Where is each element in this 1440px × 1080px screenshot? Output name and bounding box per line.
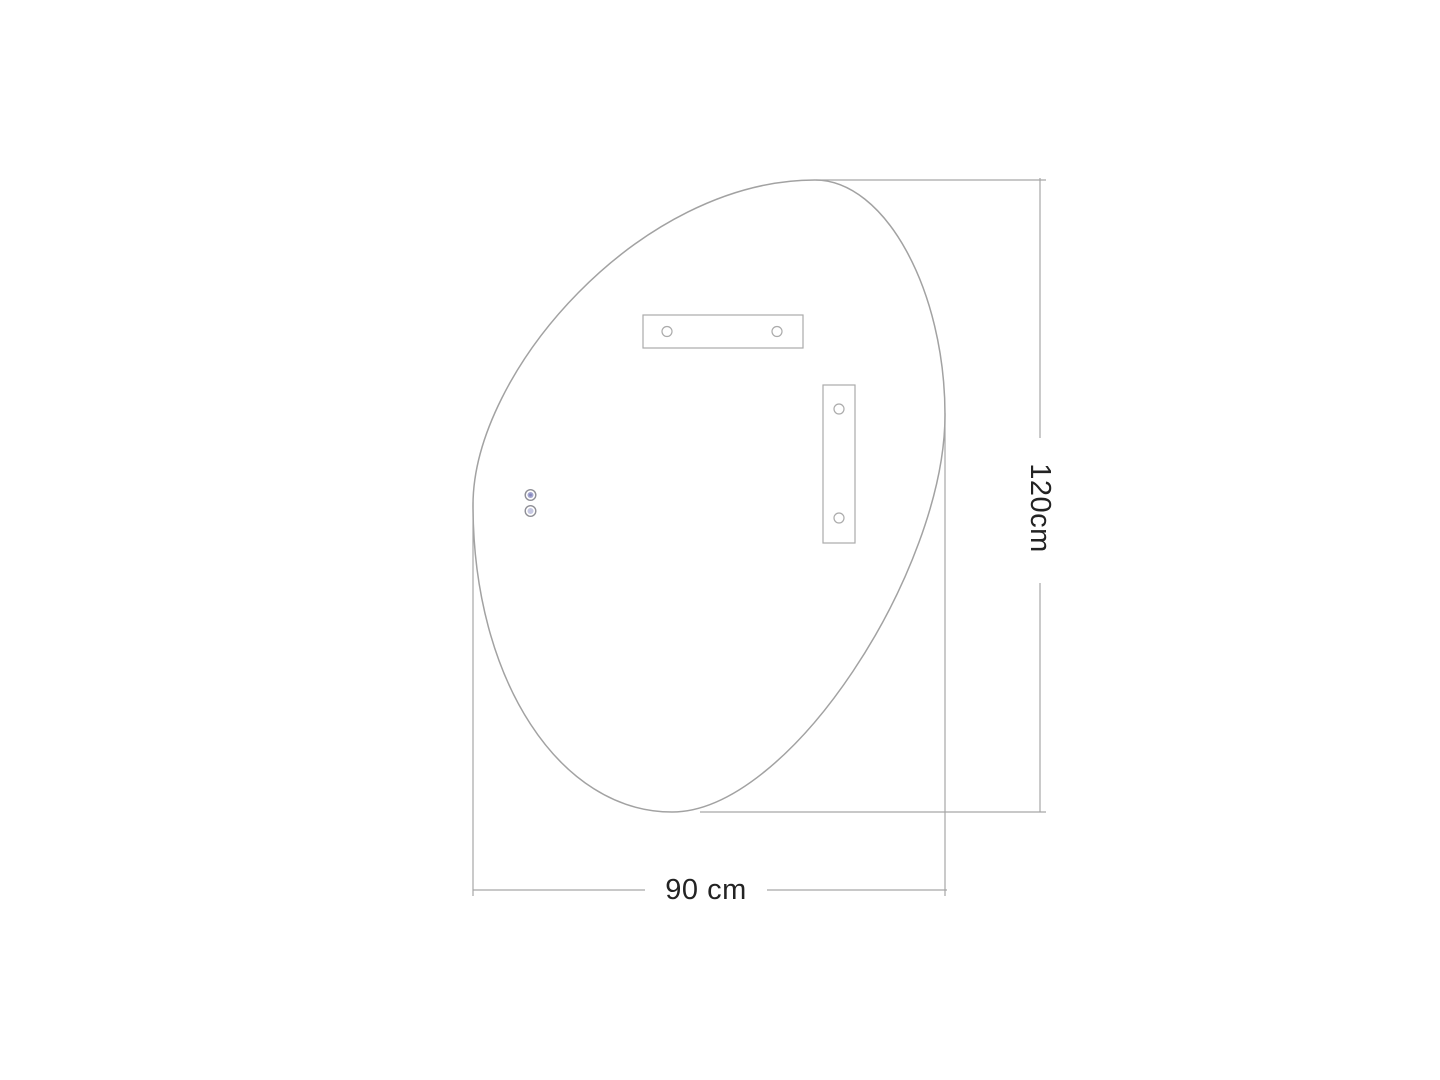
touch-sensor-buttons — [525, 490, 536, 517]
diagram-canvas: 120cm 90 cm — [0, 0, 1440, 1080]
touch-sensor-top-icon — [525, 490, 536, 501]
top-bracket-hole-left — [662, 327, 672, 337]
top-bracket-hole-right — [772, 327, 782, 337]
width-dimension-label: 90 cm — [665, 874, 746, 906]
top-mounting-bracket — [643, 315, 803, 348]
side-mounting-bracket — [823, 385, 855, 543]
side-bracket-hole-top — [834, 404, 844, 414]
height-dimension-label: 120cm — [1024, 463, 1056, 553]
mirror-outline — [473, 180, 945, 812]
width-dimension: 90 cm — [473, 413, 947, 906]
side-bracket-hole-bottom — [834, 513, 844, 523]
touch-sensor-bottom-icon — [525, 506, 536, 517]
height-dimension: 120cm — [700, 178, 1056, 812]
mirror-dimension-diagram: 120cm 90 cm — [0, 0, 1440, 1080]
